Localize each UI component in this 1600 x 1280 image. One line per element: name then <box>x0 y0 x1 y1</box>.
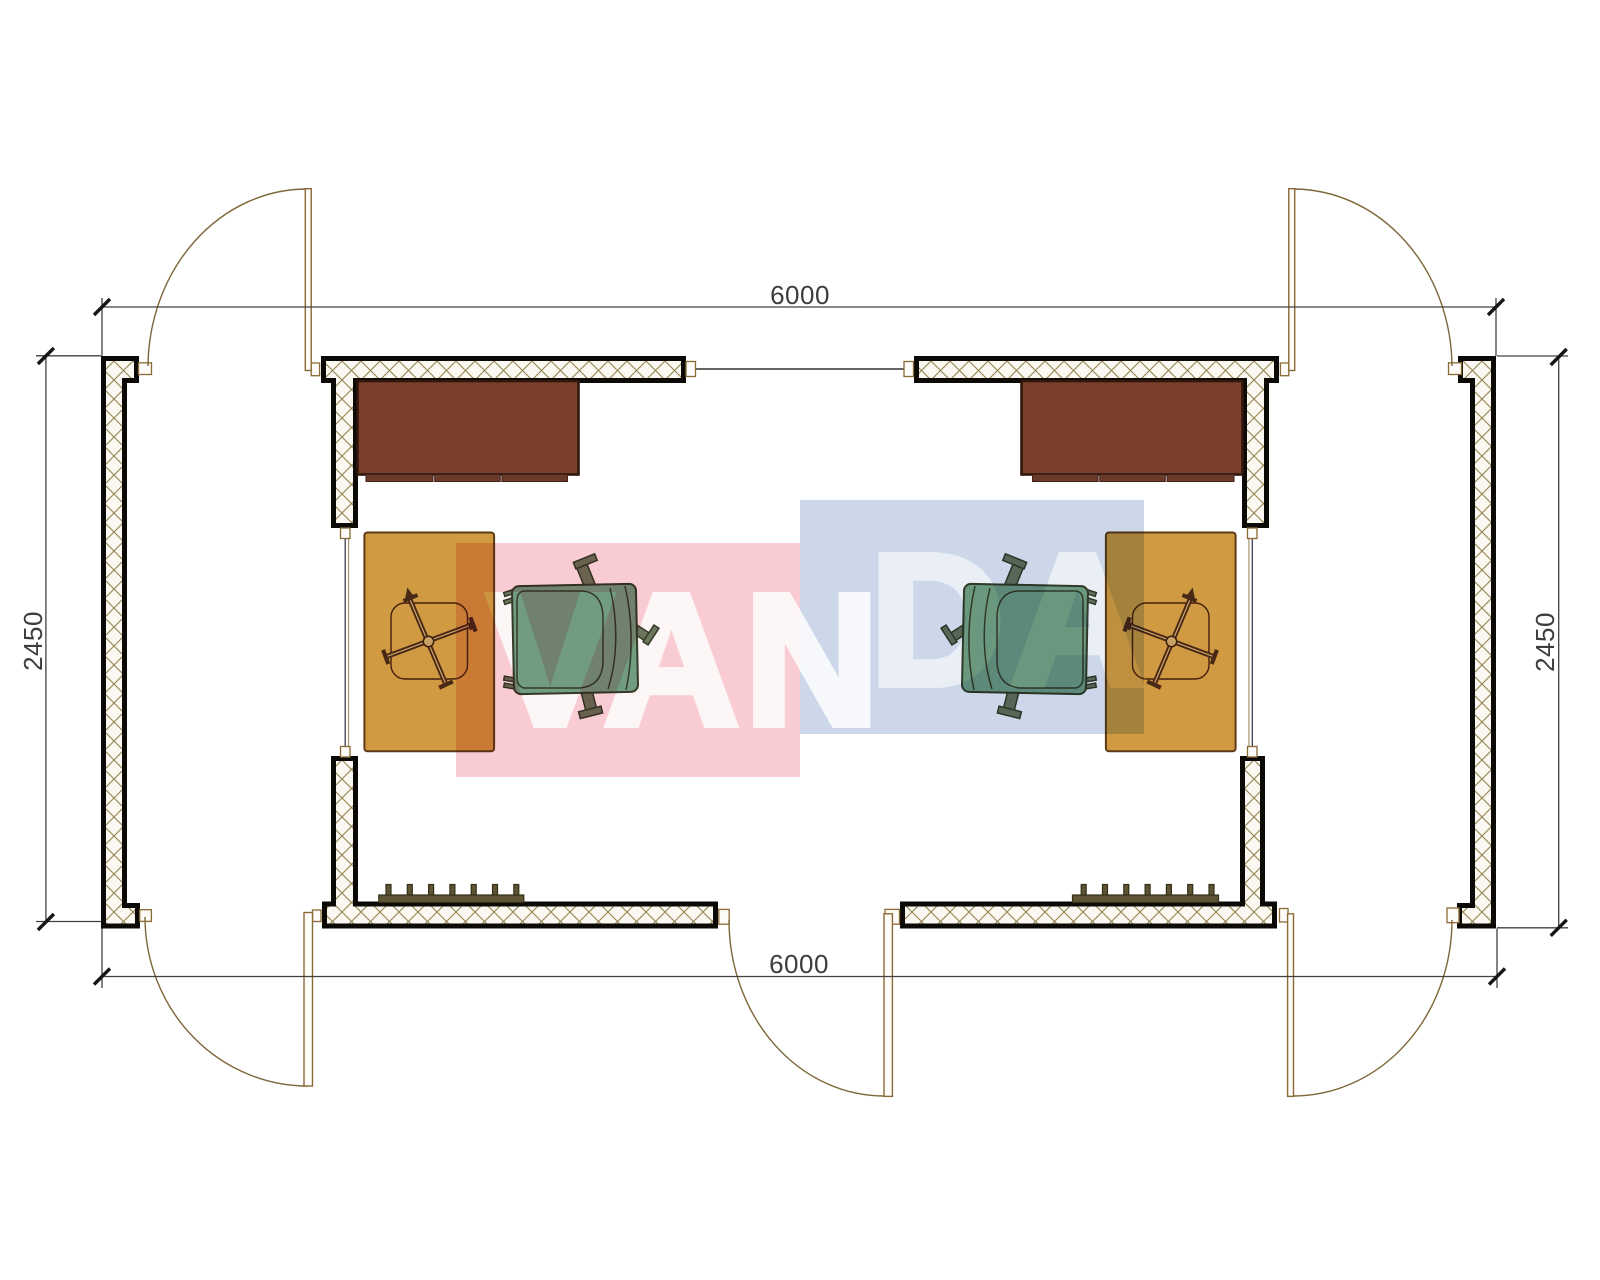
svg-text:2450: 2450 <box>1530 612 1560 672</box>
svg-text:6000: 6000 <box>770 280 830 310</box>
svg-text:2450: 2450 <box>18 611 48 671</box>
svg-text:6000: 6000 <box>769 949 829 979</box>
